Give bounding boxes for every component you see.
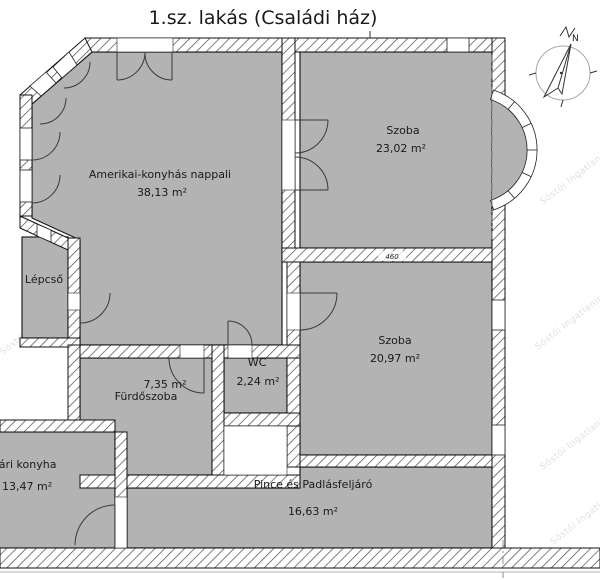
floorplan-page: Sóstói Ingatlaniroda Sóstói Ingatlanirod… [0, 0, 600, 580]
watermark-text: Sóstói Ingatlaniroda [533, 282, 600, 352]
compass-needle-icon [544, 44, 571, 97]
window [447, 38, 469, 52]
room-label: WC [248, 356, 267, 369]
room-label: Amerikai-konyhás nappali [89, 168, 231, 181]
room-area: 38,13 m² [137, 186, 187, 199]
wall-right-upper [492, 38, 505, 95]
dimension-label: 460 [385, 253, 399, 261]
room-label: Lépcső [25, 273, 63, 286]
watermark-text: Sóstói Ingatlaniroda [548, 477, 600, 547]
room-area: 23,02 m² [376, 142, 426, 155]
room-label: Szoba [378, 334, 411, 347]
watermark-text: Sóstói Ingatlaniroda [538, 137, 600, 207]
wall-szoba2-pince [300, 455, 492, 467]
room-area: 16,63 m² [288, 505, 338, 518]
compass-north-label: N [572, 34, 579, 44]
room-label: Fürdőszoba [115, 390, 178, 403]
wall-right-lower [492, 205, 505, 548]
door-gap-szoba1 [282, 120, 295, 190]
wall-bottom [0, 548, 600, 568]
room-label: Pince és Padlásfeljáró [254, 478, 373, 491]
floorplan-canvas: Sóstói Ingatlaniroda Sóstói Ingatlanirod… [0, 0, 600, 580]
window [492, 425, 505, 455]
compass-rose: N [529, 27, 597, 107]
wall-lepcso-right [68, 238, 80, 345]
room-label: Szoba [386, 124, 419, 137]
wall-nyari-top [0, 420, 115, 432]
window [20, 128, 32, 160]
window [20, 170, 32, 202]
door-gap-furdo [180, 345, 204, 358]
room-area: 13,47 m² [2, 480, 52, 493]
door-gap-szoba2 [287, 293, 300, 330]
door-gap-lepcso [68, 293, 80, 310]
watermark-text: Sóstói Ingatlaniroda [538, 402, 600, 472]
room-area: 2,24 m² [236, 375, 279, 388]
notch-area [224, 426, 287, 475]
room-label: Nyári konyha [0, 458, 56, 471]
page-title: 1.sz. lakás (Családi ház) [149, 7, 378, 29]
room-lepcso [22, 237, 68, 338]
door-gap-living-top [117, 38, 173, 52]
door-gap-nyari [115, 497, 127, 548]
window [492, 300, 505, 330]
wall-furdo-wc [212, 345, 224, 488]
wall-left-lower [68, 345, 80, 425]
wall-wc-bottom [224, 413, 300, 426]
compass-center-dot [560, 72, 562, 74]
room-area: 20,97 m² [370, 352, 420, 365]
compass-circle [536, 46, 590, 100]
